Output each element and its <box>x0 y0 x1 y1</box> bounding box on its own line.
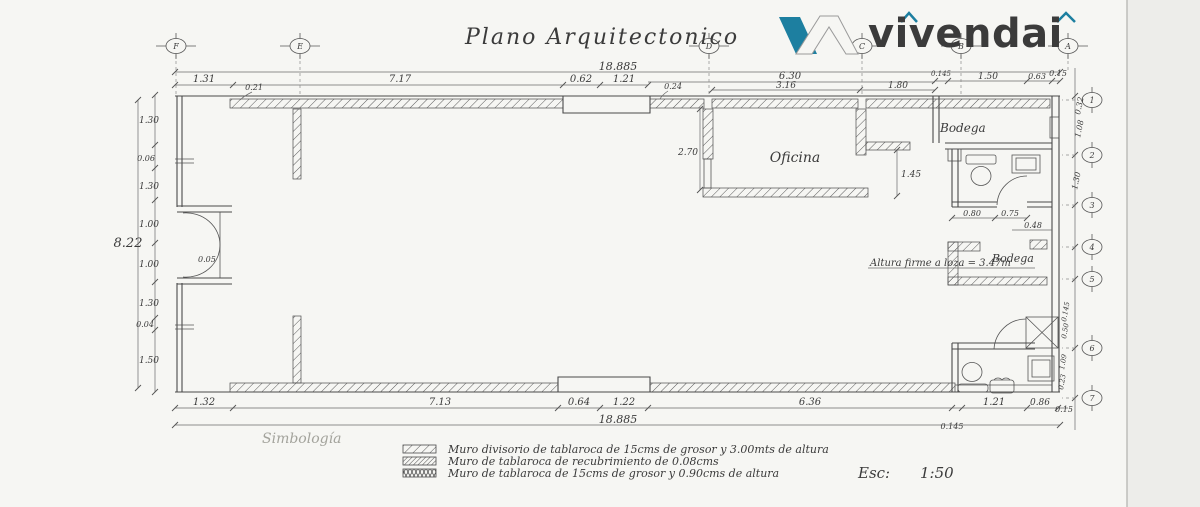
dim: 1.32 <box>193 397 215 408</box>
bottom-dimension-labels: 1.32 7.13 0.64 1.22 6.36 0.145 1.21 0.86… <box>193 397 1073 431</box>
dim: 1.00 <box>139 220 159 230</box>
grid-marker-4: 4 <box>1082 234 1102 260</box>
grid-marker-6: 6 <box>1082 335 1102 361</box>
scale-label: Esc: <box>857 464 890 482</box>
dim-bath: 0.80 <box>963 209 981 218</box>
scan-margin <box>1127 0 1200 507</box>
dim: 7.17 <box>389 74 412 85</box>
right-dimension-labels: 0.32 1.08 1.30 0.145 0.50 1.09 0.23 <box>1057 96 1086 390</box>
hatched-partition-walls <box>230 99 1050 392</box>
outer-walls <box>175 96 1060 392</box>
dim: 1.50 <box>978 72 998 82</box>
grid-marker-7: 7 <box>1082 385 1102 411</box>
grid-label: 1 <box>1089 96 1094 105</box>
dim: 0.23 <box>1057 373 1068 390</box>
dim-top-total: 18.885 <box>599 60 638 73</box>
dim: 0.145 <box>941 422 964 431</box>
grid-label: 6 <box>1089 344 1094 353</box>
top-dimension-labels: 18.885 1.31 0.21 7.17 0.62 1.21 0.24 3.1… <box>193 60 1067 92</box>
toilet-icon <box>962 363 982 382</box>
dim-bottom-total: 18.885 <box>599 413 638 426</box>
dim-door: 0.05 <box>198 255 216 264</box>
dim: 0.145 <box>1060 301 1071 323</box>
room-label-bodega-top: Bodega <box>939 121 986 135</box>
legend-swatch-divider-wall <box>403 445 436 453</box>
grid-marker-2: 2 <box>1082 142 1102 168</box>
dim: 1.31 <box>193 74 215 85</box>
grid-label: C <box>859 42 865 51</box>
dim-bath: 0.48 <box>1024 221 1042 230</box>
legend-swatch-low-wall <box>403 469 436 477</box>
dimension-lines <box>135 55 1078 430</box>
left-dimension-labels: 1.30 0.06 1.30 1.00 1.00 1.30 0.04 1.50 … <box>114 116 216 366</box>
legend: Simbología Muro divisorio de tablaroca d… <box>262 431 954 482</box>
wall-recesses <box>558 96 650 392</box>
dim: 0.145 <box>931 70 952 78</box>
scale-value: 1:50 <box>920 464 954 482</box>
grid-marker-3: 3 <box>1082 192 1102 218</box>
dim: 1.21 <box>613 74 635 85</box>
dim: 1.30 <box>139 299 159 309</box>
left-wall-stubs <box>175 159 194 329</box>
dim: 0.24 <box>664 82 682 91</box>
toilet-icon <box>971 167 991 186</box>
dim: 1.21 <box>983 397 1005 408</box>
dim: 0.50 <box>1060 322 1071 339</box>
room-label-oficina: Oficina <box>770 150 821 166</box>
dim: 0.15 <box>1049 69 1067 78</box>
dim: 3.16 <box>776 81 796 91</box>
dim-oficina-right: 1.45 <box>901 170 921 180</box>
dim: 0.62 <box>570 74 592 85</box>
oficina-door <box>704 159 711 188</box>
dim: 6.36 <box>799 397 822 408</box>
dim: 0.06 <box>137 154 155 163</box>
drawing-title: Plano Arquitectonico <box>464 25 739 50</box>
grid-markers-right: 1 2 3 4 5 6 7 <box>1082 87 1102 411</box>
dim: 0.04 <box>136 320 154 329</box>
grid-marker-F: F <box>156 33 196 59</box>
floor-plan-drawing: F E D C B A 1 <box>0 0 1200 507</box>
dim: 0.15 <box>1055 405 1073 414</box>
grid-label: 5 <box>1089 275 1094 284</box>
grid-label: 7 <box>1089 394 1095 403</box>
dim: 0.63 <box>1028 72 1046 81</box>
dim: 6.30 <box>779 71 802 82</box>
dim: 1.50 <box>139 356 159 366</box>
dim: 1.22 <box>613 397 635 408</box>
dim: 1.80 <box>888 81 908 91</box>
legend-swatch-lining-wall <box>403 457 436 465</box>
dim: 0.21 <box>245 83 263 92</box>
dim: 0.64 <box>568 397 590 408</box>
logo-wordmark: vivendai <box>868 11 1063 57</box>
legend-item: Muro de tablaroca de 15cms de grosor y 0… <box>447 467 779 480</box>
grid-label: 3 <box>1089 201 1094 210</box>
dim-bath: 0.75 <box>1001 209 1019 218</box>
dim-left-total: 8.22 <box>114 236 143 251</box>
entrance-double-door <box>177 206 232 284</box>
grid-label: 2 <box>1088 151 1094 160</box>
dim: 7.13 <box>429 397 451 408</box>
dim: 1.30 <box>1070 171 1083 190</box>
dim: 1.30 <box>139 116 159 126</box>
dim: 1.30 <box>139 182 159 192</box>
grid-label: E <box>296 42 303 51</box>
legend-heading: Simbología <box>262 431 341 447</box>
grid-label: F <box>172 42 179 51</box>
shaft-with-door <box>994 317 1058 349</box>
dim: 1.00 <box>139 260 159 270</box>
dim: 1.09 <box>1058 353 1069 370</box>
grid-marker-5: 5 <box>1082 266 1102 292</box>
grid-marker-E: E <box>280 33 320 59</box>
top-right-bodega-bathroom <box>933 96 1059 230</box>
altura-annotation: Altura firme a loza = 3.47m <box>869 258 1011 269</box>
grid-label: A <box>1064 42 1071 51</box>
dim: 0.86 <box>1030 398 1050 408</box>
sink-icon <box>990 380 1014 393</box>
bottom-right-bathroom <box>952 343 1054 393</box>
grid-label: 4 <box>1088 243 1094 252</box>
dim-oficina-height: 2.70 <box>677 148 698 158</box>
scanned-floor-plan: F E D C B A 1 <box>0 0 1200 507</box>
vivendai-logo: vivendai <box>779 11 1075 57</box>
